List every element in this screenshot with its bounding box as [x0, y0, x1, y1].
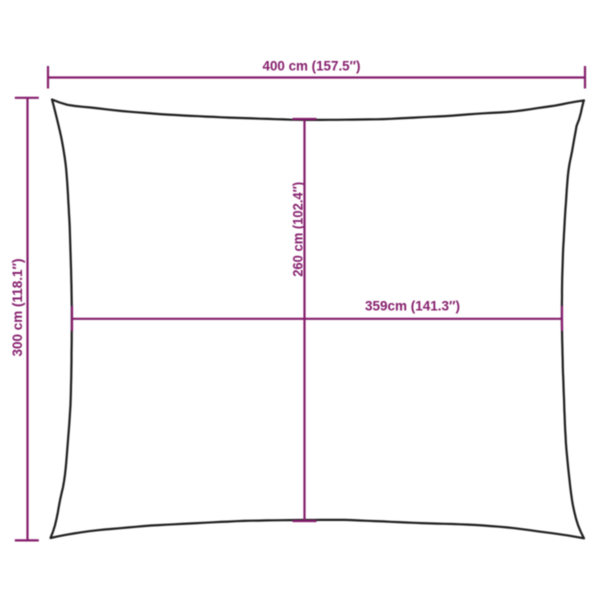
svg-text:260 cm (102.4″): 260 cm (102.4″)	[289, 182, 305, 277]
svg-text:359cm (141.3″): 359cm (141.3″)	[365, 298, 460, 314]
svg-text:300 cm (118.1″): 300 cm (118.1″)	[9, 259, 25, 357]
svg-text:400 cm (157.5″): 400 cm (157.5″)	[263, 58, 361, 74]
